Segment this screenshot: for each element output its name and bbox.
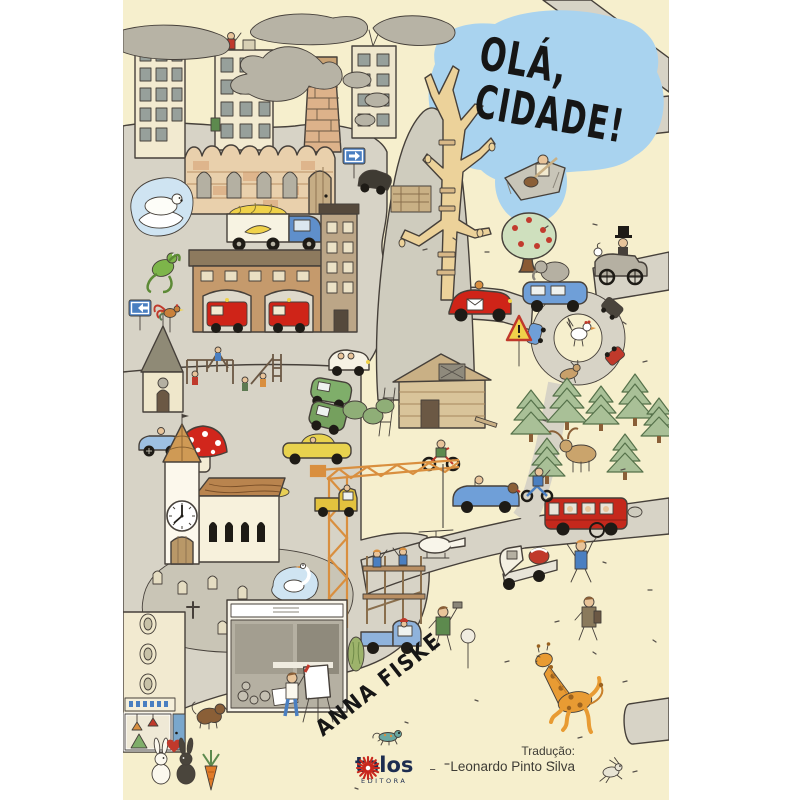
trash-bin — [211, 118, 220, 131]
clock — [167, 501, 197, 531]
fire-station — [189, 250, 325, 333]
translation-credit: Tradução: Leonardo Pinto Silva — [433, 744, 575, 776]
treehouse-platform — [391, 186, 431, 212]
translator-name: Leonardo Pinto Silva — [433, 759, 575, 776]
book-cover: OLÁ, CIDADE! ANNA FISKE telos EDITORA — [123, 0, 669, 800]
brown-building — [319, 204, 359, 332]
cypress — [348, 637, 364, 671]
corner-shop — [123, 612, 185, 752]
screenshot-canvas: OLÁ, CIDADE! ANNA FISKE telos EDITORA — [0, 0, 800, 800]
publisher-logo: telos EDITORA — [355, 755, 436, 785]
publisher-starburst-icon — [355, 755, 381, 781]
translation-label: Tradução: — [433, 744, 575, 759]
castle-brick-wall — [185, 145, 335, 214]
